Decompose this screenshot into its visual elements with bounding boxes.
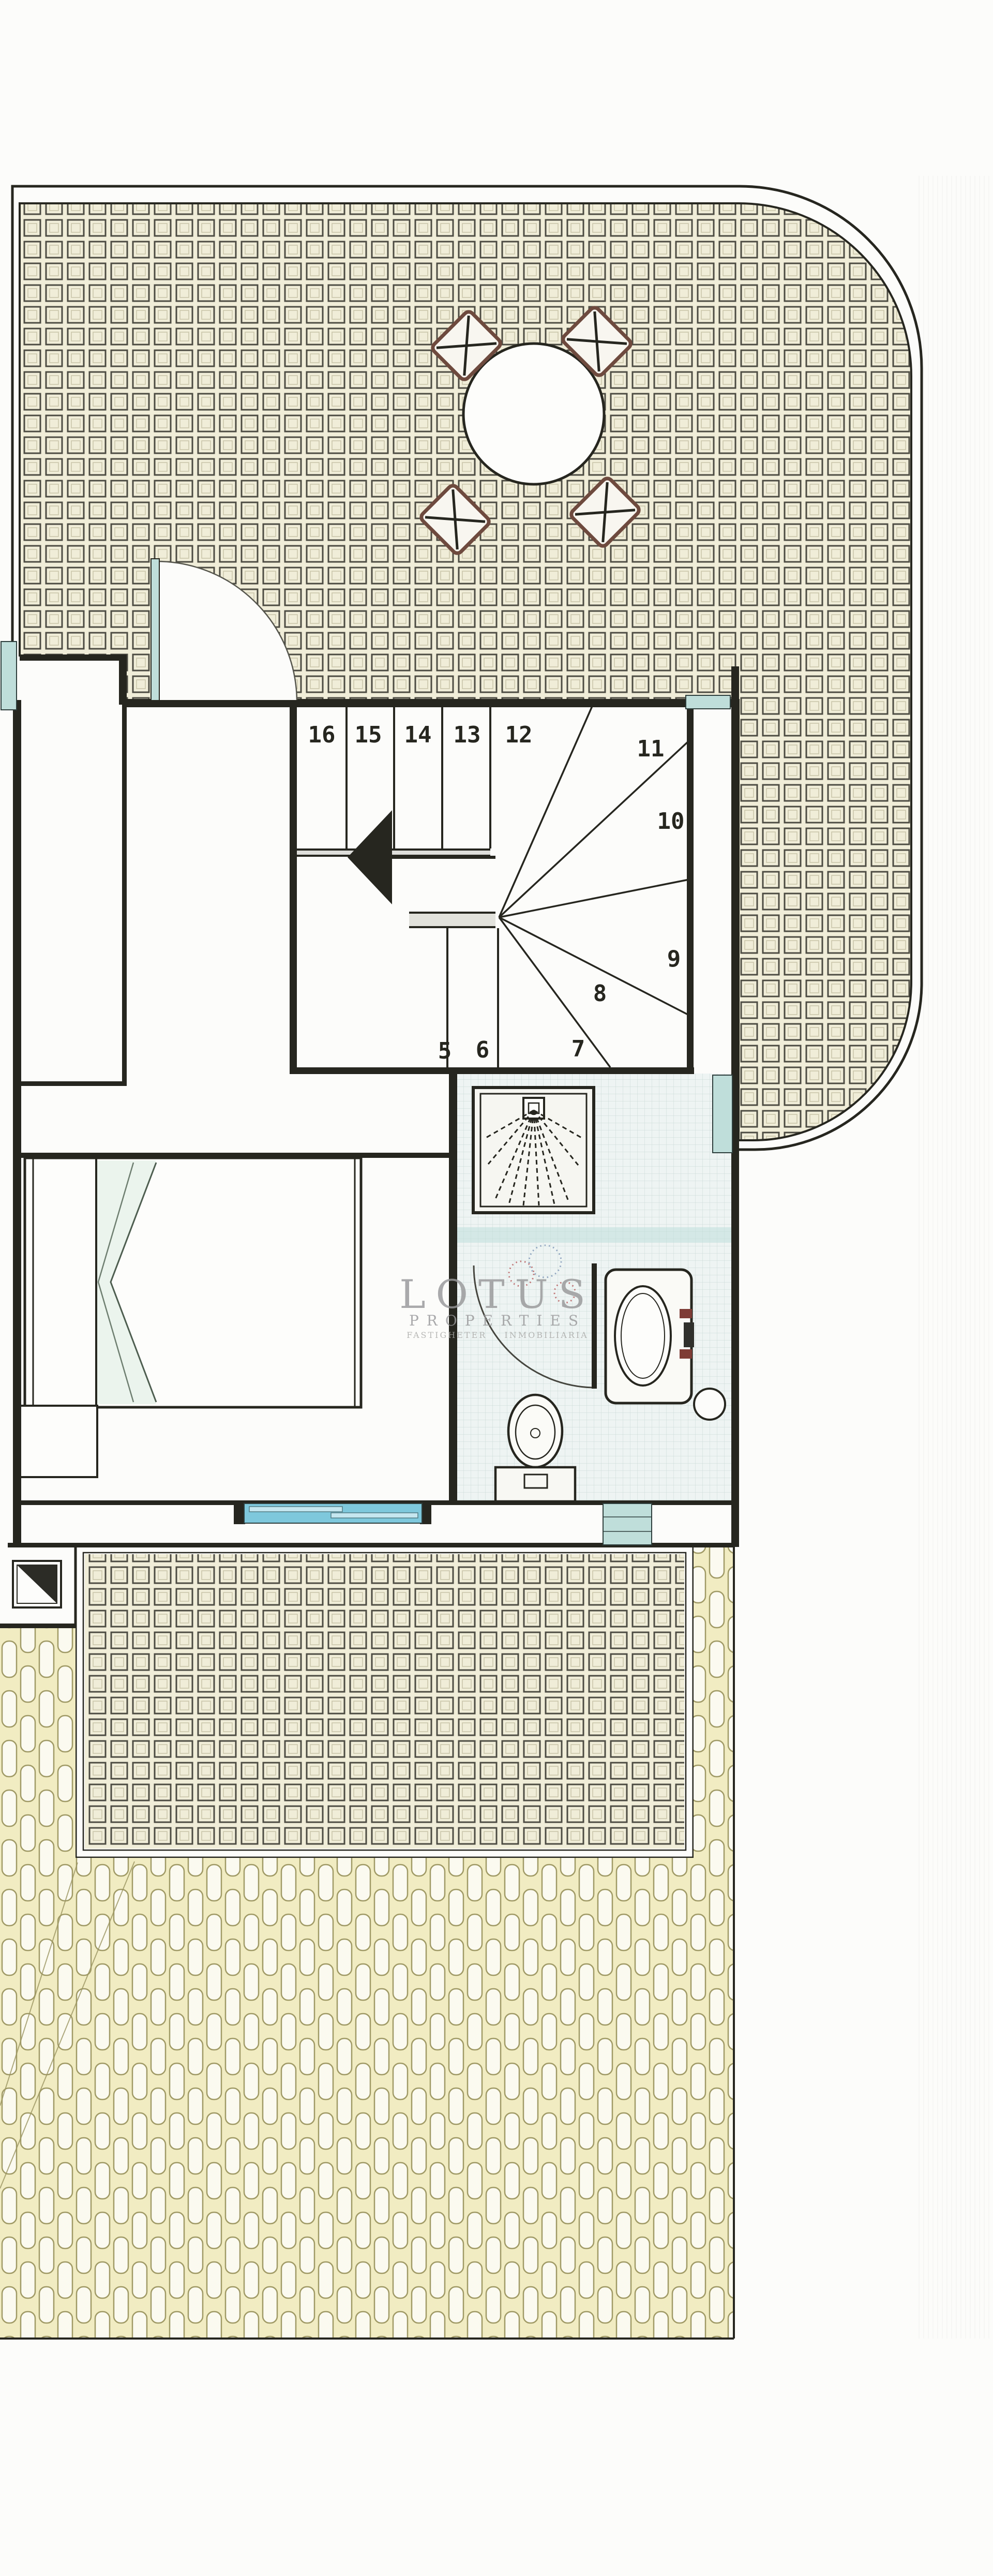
- stair-step-number: 15: [355, 722, 382, 748]
- stair-step-number: 8: [593, 980, 607, 1007]
- toilet-cistern: [495, 1467, 575, 1501]
- watermark-name: LOTUS: [399, 1271, 596, 1317]
- faucet: [684, 1322, 694, 1347]
- lower-terrace: [76, 1545, 694, 1858]
- left-exterior-wall: [13, 700, 21, 1547]
- stair-left-wall: [290, 706, 297, 1074]
- stair-step-number: 5: [438, 1038, 452, 1064]
- level-marker: [13, 1561, 61, 1607]
- flight-edge: [297, 850, 490, 856]
- tap-handle: [680, 1349, 692, 1359]
- door-leaf: [151, 559, 159, 702]
- stair-step-number: 10: [657, 808, 685, 835]
- stair-bottom-wall: [290, 1067, 694, 1074]
- basin: [615, 1286, 671, 1386]
- shower: [473, 1088, 594, 1213]
- bedside-table: [17, 1406, 97, 1477]
- window-marker: [603, 1503, 652, 1545]
- window-marker: [686, 695, 730, 709]
- watermark-subtitle: PROPERTIES: [409, 1312, 586, 1329]
- floor-accent-band: [457, 1227, 731, 1243]
- scanner-streaks: [916, 176, 993, 2339]
- landing-edge: [409, 913, 495, 927]
- stair-step-number: 9: [667, 946, 681, 972]
- terrace-interior-wall: [126, 700, 731, 707]
- window-marker: [1, 642, 17, 710]
- stair-right-wall: [687, 705, 694, 1074]
- stair-step-number: 14: [404, 722, 432, 748]
- lower-terrace-floor: [85, 1554, 684, 1849]
- stair-step-number: 12: [505, 722, 533, 748]
- wall-knob: [694, 1389, 725, 1420]
- bedroom-top-wall: [19, 1153, 457, 1158]
- stair-step-number: 11: [637, 736, 665, 762]
- watermark-tagline: FASTIGHETER INMOBILIARIA: [407, 1330, 588, 1340]
- sliding-window: [244, 1503, 422, 1523]
- double-bed: [25, 1158, 361, 1407]
- tap-handle: [680, 1309, 692, 1318]
- floor-plan-drawing: 16 15 14 13 12 11 10 9 8 7 6 5 LOTUS PRO…: [0, 0, 993, 2576]
- closet-wall: [122, 705, 127, 1085]
- stair-step-number: 13: [454, 722, 481, 748]
- washbasin: [606, 1270, 694, 1403]
- stair-step-number: 7: [571, 1036, 585, 1062]
- stair-step-number: 6: [476, 1037, 490, 1063]
- floor-plan-scan: 16 15 14 13 12 11 10 9 8 7 6 5 LOTUS PRO…: [0, 0, 993, 2576]
- window-marker: [713, 1075, 732, 1153]
- stair-step-number: 16: [308, 722, 336, 748]
- round-table: [463, 344, 604, 484]
- shower-head: [523, 1098, 544, 1119]
